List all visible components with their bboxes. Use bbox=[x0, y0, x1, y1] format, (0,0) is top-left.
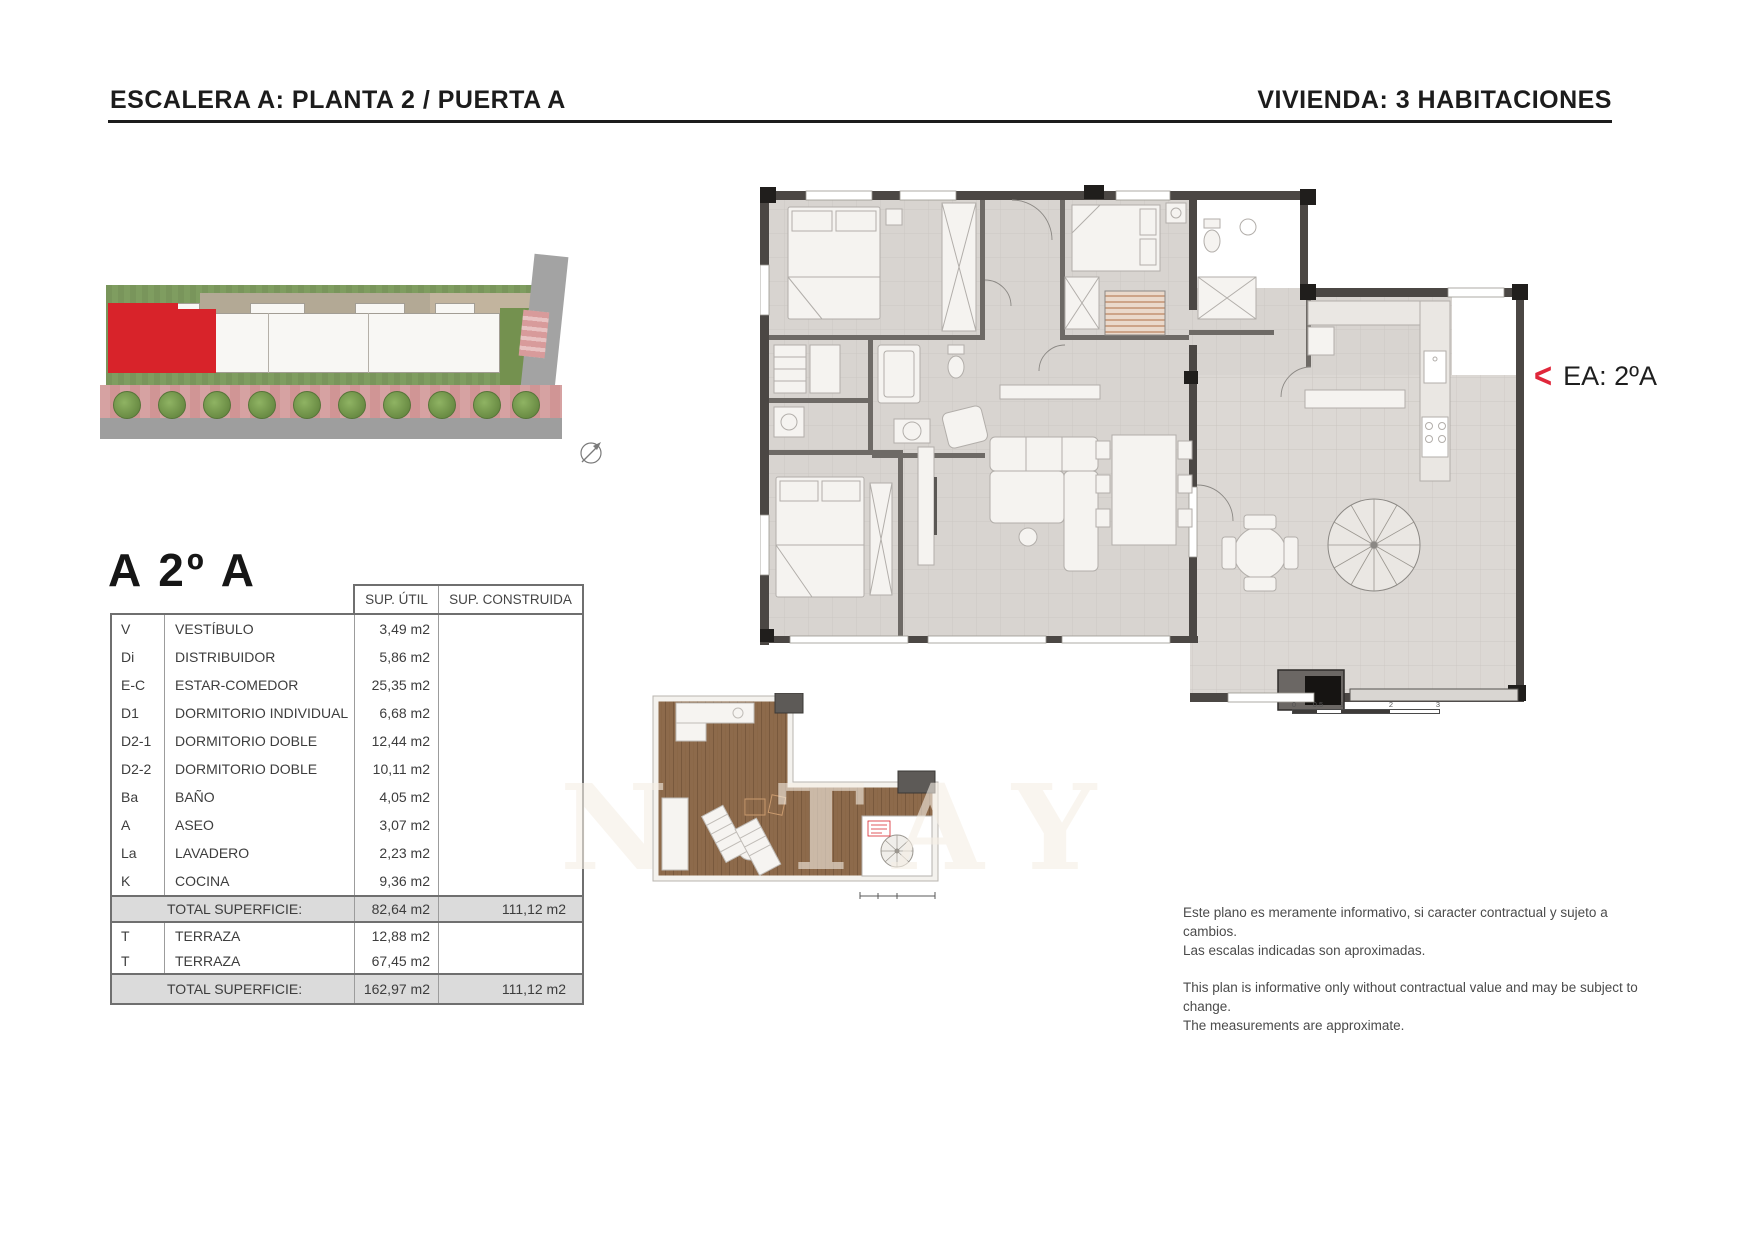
plan-sheet: ESCALERA A: PLANTA 2 / PUERTA A VIVIENDA… bbox=[0, 0, 1755, 1240]
room-code: T bbox=[112, 923, 165, 948]
nightstand bbox=[886, 209, 902, 225]
total-construida: 111,12 m2 bbox=[439, 975, 586, 1003]
table-row: KCOCINA9,36 m2 bbox=[112, 867, 582, 895]
room-util: 3,49 m2 bbox=[355, 615, 439, 643]
tree-icon bbox=[383, 391, 411, 419]
scale-label: 0.5 bbox=[1313, 700, 1323, 709]
room-construida bbox=[439, 755, 586, 783]
room-code: T bbox=[112, 948, 165, 973]
tree-icon bbox=[473, 391, 501, 419]
spiral-staircase bbox=[1328, 499, 1420, 591]
tree-icon bbox=[293, 391, 321, 419]
table-row: TTERRAZA12,88 m2 bbox=[112, 923, 582, 948]
tree-icon bbox=[158, 391, 186, 419]
room-util: 6,68 m2 bbox=[355, 699, 439, 727]
table-row: D1DORMITORIO INDIVIDUAL6,68 m2 bbox=[112, 699, 582, 727]
room-name: ESTAR-COMEDOR bbox=[165, 671, 355, 699]
room-name: DORMITORIO DOBLE bbox=[165, 727, 355, 755]
total-label: TOTAL SUPERFICIE: bbox=[112, 897, 355, 921]
total-util: 82,64 m2 bbox=[355, 897, 439, 921]
red-chevron-icon: < bbox=[1534, 355, 1552, 396]
col-header-construida: SUP. CONSTRUIDA bbox=[439, 586, 582, 613]
table-row: TTERRAZA67,45 m2 bbox=[112, 948, 582, 973]
room-construida bbox=[439, 839, 586, 867]
disclaimer-en-2: The measurements are approximate. bbox=[1183, 1016, 1663, 1035]
red-stamp bbox=[868, 821, 890, 836]
mini-scale bbox=[860, 892, 935, 899]
room-name: LAVADERO bbox=[165, 839, 355, 867]
wardrobe-3 bbox=[870, 483, 892, 595]
room-code: D2-1 bbox=[112, 727, 165, 755]
header-right: VIVIENDA: 3 HABITACIONES bbox=[1257, 86, 1612, 115]
room-construida bbox=[439, 923, 586, 948]
room-util: 4,05 m2 bbox=[355, 783, 439, 811]
bed-double-3 bbox=[776, 477, 864, 597]
room-code: D1 bbox=[112, 699, 165, 727]
bed-double-1 bbox=[788, 207, 880, 319]
terrace-blocks bbox=[775, 693, 935, 793]
plan-tag: < EA: 2ºA bbox=[1534, 358, 1657, 394]
header-rule bbox=[108, 120, 1612, 123]
room-construida bbox=[439, 783, 586, 811]
closet-2 bbox=[1065, 277, 1099, 329]
table-row: VVESTÍBULO3,49 m2 bbox=[112, 615, 582, 643]
room-util: 5,86 m2 bbox=[355, 643, 439, 671]
room-code: K bbox=[112, 867, 165, 895]
tree-icon bbox=[203, 391, 231, 419]
scale-label: 0 bbox=[1292, 700, 1296, 709]
site-walkway bbox=[200, 293, 452, 313]
room-construida bbox=[439, 727, 586, 755]
table-row: LaLAVADERO2,23 m2 bbox=[112, 839, 582, 867]
tree-icon bbox=[428, 391, 456, 419]
scale-label: 3 bbox=[1436, 700, 1440, 709]
scale-label: 1 bbox=[1340, 700, 1344, 709]
table-row: DiDISTRIBUIDOR5,86 m2 bbox=[112, 643, 582, 671]
room-code: D2-2 bbox=[112, 755, 165, 783]
building-divider bbox=[368, 313, 369, 373]
site-plan bbox=[100, 253, 562, 439]
table-row: E-CESTAR-COMEDOR25,35 m2 bbox=[112, 671, 582, 699]
table-header: SUP. ÚTIL SUP. CONSTRUIDA bbox=[353, 584, 584, 613]
table-row: AASEO3,07 m2 bbox=[112, 811, 582, 839]
aseo-fixtures bbox=[1198, 219, 1256, 319]
access-stair-box bbox=[862, 816, 932, 876]
tree-icon bbox=[512, 391, 540, 419]
total-util: 162,97 m2 bbox=[355, 975, 439, 1003]
room-util: 10,11 m2 bbox=[355, 755, 439, 783]
room-util: 67,45 m2 bbox=[355, 948, 439, 973]
room-code: Di bbox=[112, 643, 165, 671]
scale-bar: 0 0.5 1 2 3 bbox=[1292, 700, 1442, 720]
washer-2 bbox=[1166, 203, 1186, 223]
room-util: 3,07 m2 bbox=[355, 811, 439, 839]
terrace-plan bbox=[650, 693, 940, 905]
floor-plan bbox=[760, 185, 1530, 715]
total-construida: 111,12 m2 bbox=[439, 897, 586, 921]
disclaimer: Este plano es meramente informativo, si … bbox=[1183, 903, 1663, 1035]
room-util: 25,35 m2 bbox=[355, 671, 439, 699]
room-util: 2,23 m2 bbox=[355, 839, 439, 867]
room-construida bbox=[439, 811, 586, 839]
stairs-hatched bbox=[1105, 291, 1165, 335]
table-row: BaBAÑO4,05 m2 bbox=[112, 783, 582, 811]
total-label: TOTAL SUPERFICIE: bbox=[112, 975, 355, 1003]
room-name: TERRAZA bbox=[165, 948, 355, 973]
tree-icon bbox=[338, 391, 366, 419]
room-code: La bbox=[112, 839, 165, 867]
plan-tag-label: EA: 2ºA bbox=[1563, 361, 1657, 392]
tree-icon bbox=[113, 391, 141, 419]
wardrobe bbox=[942, 203, 976, 331]
room-name: DORMITORIO DOBLE bbox=[165, 755, 355, 783]
north-arrow-icon bbox=[576, 438, 606, 468]
room-code: Ba bbox=[112, 783, 165, 811]
room-name: TERRAZA bbox=[165, 923, 355, 948]
side-table bbox=[1019, 528, 1037, 546]
disclaimer-es-1: Este plano es meramente informativo, si … bbox=[1183, 903, 1663, 941]
site-crosswalk bbox=[519, 310, 550, 358]
col-header-util: SUP. ÚTIL bbox=[355, 586, 439, 613]
room-code: E-C bbox=[112, 671, 165, 699]
room-construida bbox=[439, 671, 586, 699]
tv-unit bbox=[918, 447, 937, 565]
room-name: COCINA bbox=[165, 867, 355, 895]
tree-icon bbox=[248, 391, 276, 419]
room-code: V bbox=[112, 615, 165, 643]
scale-label: 2 bbox=[1389, 700, 1393, 709]
room-util: 12,44 m2 bbox=[355, 727, 439, 755]
site-road bbox=[100, 418, 562, 439]
building-divider bbox=[268, 313, 269, 373]
room-construida bbox=[439, 867, 586, 895]
table-body: VVESTÍBULO3,49 m2 DiDISTRIBUIDOR5,86 m2 … bbox=[110, 613, 584, 1005]
room-construida bbox=[439, 615, 586, 643]
total-interior-row: TOTAL SUPERFICIE:82,64 m2111,12 m2 bbox=[112, 895, 582, 923]
header-left: ESCALERA A: PLANTA 2 / PUERTA A bbox=[110, 86, 566, 115]
table-row: D2-2DORMITORIO DOBLE10,11 m2 bbox=[112, 755, 582, 783]
bed-double-2 bbox=[1072, 205, 1160, 271]
room-construida bbox=[439, 643, 586, 671]
sideboard bbox=[1000, 385, 1100, 399]
disclaimer-en-1: This plan is informative only without co… bbox=[1183, 978, 1663, 1016]
room-name: DORMITORIO INDIVIDUAL bbox=[165, 699, 355, 727]
room-name: VESTÍBULO bbox=[165, 615, 355, 643]
disclaimer-es-2: Las escalas indicadas son aproximadas. bbox=[1183, 941, 1663, 960]
room-util: 9,36 m2 bbox=[355, 867, 439, 895]
room-name: BAÑO bbox=[165, 783, 355, 811]
room-construida bbox=[439, 699, 586, 727]
scale-bar-segments bbox=[1292, 709, 1440, 714]
unit-title: A 2º A bbox=[108, 543, 257, 597]
washing-machine bbox=[774, 407, 804, 437]
room-util: 12,88 m2 bbox=[355, 923, 439, 948]
total-overall-row: TOTAL SUPERFICIE:162,97 m2111,12 m2 bbox=[112, 973, 582, 1003]
room-name: ASEO bbox=[165, 811, 355, 839]
room-name: DISTRIBUIDOR bbox=[165, 643, 355, 671]
room-construida bbox=[439, 948, 586, 973]
table-row: D2-1DORMITORIO DOBLE12,44 m2 bbox=[112, 727, 582, 755]
room-code: A bbox=[112, 811, 165, 839]
highlighted-unit bbox=[108, 309, 216, 373]
